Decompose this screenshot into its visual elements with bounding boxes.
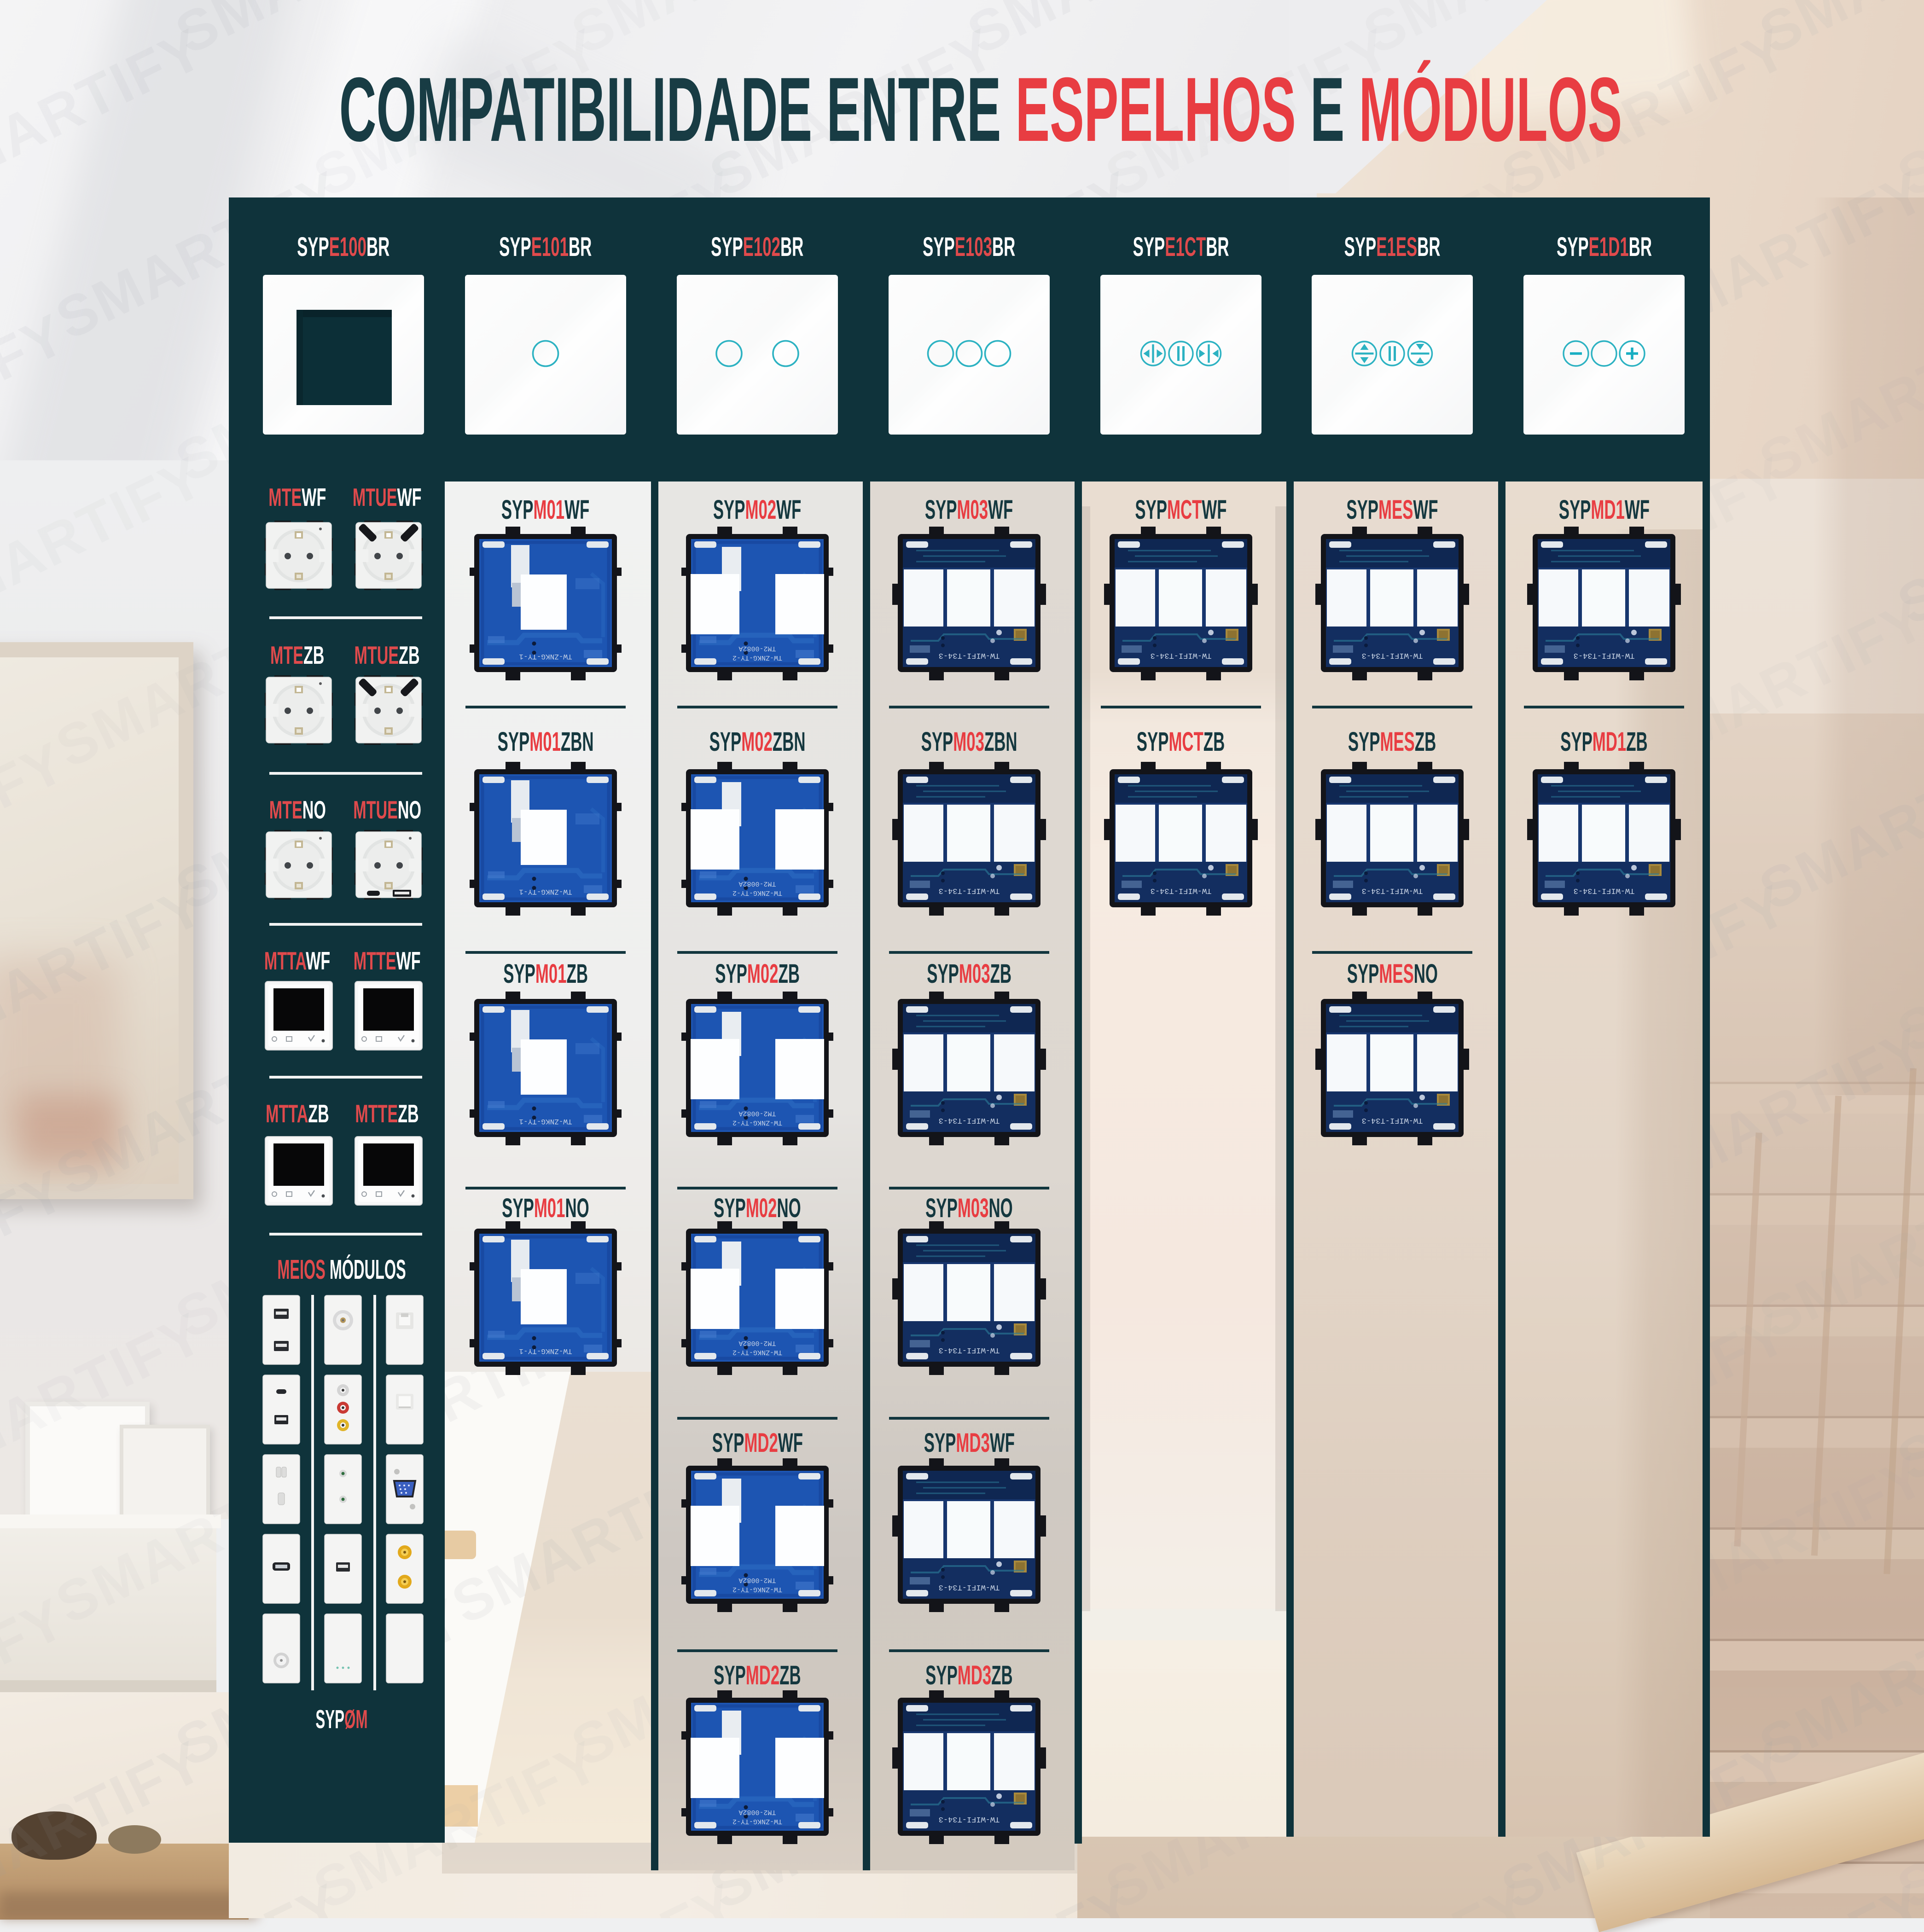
svg-text:SMARTIFY: SMARTIFY: [0, 0, 76, 66]
svg-text:SMARTIFY: SMARTIFY: [562, 0, 868, 66]
svg-text:TM2-0082A: TM2-0082A: [738, 1339, 776, 1347]
svg-text:SMARTIFY: SMARTIFY: [442, 1871, 748, 1918]
svg-text:TW-WIFI-T34-3: TW-WIFI-T34-3: [939, 651, 1000, 660]
svg-text:TW-WIFI-T34-3: TW-WIFI-T34-3: [1151, 651, 1212, 660]
svg-text:SMARTIFY: SMARTIFY: [1234, 1871, 1540, 1918]
svg-text:TW-ZNKG-TY-2: TW-ZNKG-TY-2: [732, 1585, 782, 1593]
svg-text:TW-ZNKG-TY-1: TW-ZNKG-TY-1: [519, 652, 572, 661]
svg-text:TW-WIFI-T34-3: TW-WIFI-T34-3: [1151, 886, 1212, 895]
svg-text:TW-WIFI-T34-3: TW-WIFI-T34-3: [939, 1116, 1000, 1125]
svg-text:SMARTIFY: SMARTIFY: [0, 1729, 214, 1918]
svg-text:TW-WIFI-T34-3: TW-WIFI-T34-3: [939, 1815, 1000, 1823]
svg-text:TW-WIFI-T34-3: TW-WIFI-T34-3: [939, 886, 1000, 895]
svg-text:SMARTIFY: SMARTIFY: [47, 1871, 352, 1918]
svg-text:TW-WIFI-T34-3: TW-WIFI-T34-3: [1574, 651, 1635, 660]
svg-text:SMARTIFY: SMARTIFY: [0, 1300, 214, 1493]
svg-text:TM2-0082A: TM2-0082A: [738, 880, 776, 888]
svg-text:TM2-0082A: TM2-0082A: [738, 644, 776, 652]
svg-text:TM2-0082A: TM2-0082A: [738, 1109, 776, 1117]
svg-text:SMARTIFY: SMARTIFY: [958, 0, 1264, 66]
svg-text:TW-WIFI-T34-3: TW-WIFI-T34-3: [1362, 1116, 1423, 1125]
svg-text:TW-ZNKG-TY-2: TW-ZNKG-TY-2: [732, 1348, 782, 1356]
svg-text:TW-ZNKG-TY-2: TW-ZNKG-TY-2: [732, 889, 782, 897]
svg-text:SMARTIFY: SMARTIFY: [0, 444, 214, 637]
svg-text:TW-WIFI-T34-3: TW-WIFI-T34-3: [1574, 886, 1635, 895]
svg-text:TW-WIFI-T34-3: TW-WIFI-T34-3: [1362, 651, 1423, 660]
svg-text:SMARTIFY: SMARTIFY: [1630, 1871, 1924, 1918]
svg-text:SMARTIFY: SMARTIFY: [1354, 0, 1660, 66]
svg-text:TW-WIFI-T34-3: TW-WIFI-T34-3: [1362, 886, 1423, 895]
svg-text:TW-ZNKG-TY-2: TW-ZNKG-TY-2: [732, 1119, 782, 1126]
svg-text:TW-WIFI-T34-3: TW-WIFI-T34-3: [939, 1346, 1000, 1354]
svg-text:TW-ZNKG-TY-2: TW-ZNKG-TY-2: [732, 1817, 782, 1825]
svg-text:TM2-0082A: TM2-0082A: [738, 1576, 776, 1584]
svg-text:SMARTIFY: SMARTIFY: [838, 1871, 1144, 1918]
svg-text:TW-ZNKG-TY-1: TW-ZNKG-TY-1: [519, 888, 572, 896]
svg-text:SMARTIFY: SMARTIFY: [166, 0, 472, 66]
svg-text:TW-ZNKG-TY-1: TW-ZNKG-TY-1: [519, 1117, 572, 1126]
svg-text:TM2-0082A: TM2-0082A: [738, 1808, 776, 1816]
svg-text:TW-ZNKG-TY-2: TW-ZNKG-TY-2: [732, 654, 782, 661]
svg-text:TW-ZNKG-TY-1: TW-ZNKG-TY-1: [519, 1347, 572, 1355]
svg-text:TW-WIFI-T34-3: TW-WIFI-T34-3: [939, 1583, 1000, 1591]
